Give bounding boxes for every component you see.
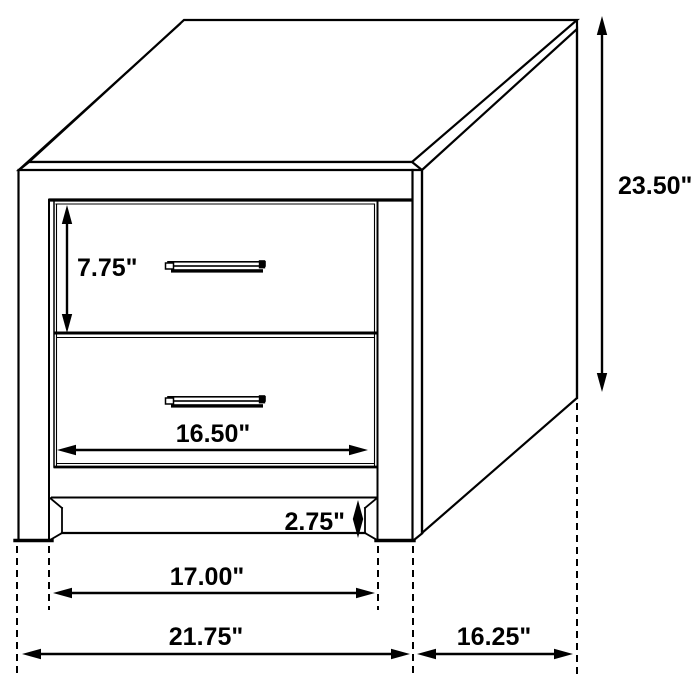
dim-overall-height-label: 23.50": [618, 172, 692, 200]
drawer-2-handle: [166, 395, 266, 407]
technical-drawing-canvas: 7.75" 23.50" 16.50" 2.75" 17: [0, 0, 700, 700]
top-front-edge: [19, 162, 422, 170]
drawer-1-handle: [166, 260, 266, 272]
dim-drawer-width-label: 16.50": [176, 420, 250, 448]
dim-drawer-height-label: 7.75": [77, 254, 138, 282]
nightstand-dimension-drawing: 7.75" 23.50" 16.50" 2.75" 17: [0, 0, 700, 700]
handle-right-cap: [259, 260, 265, 268]
dim-overall-width-label: 21.75": [169, 623, 243, 651]
handle-left-cap: [166, 263, 174, 269]
dim-base-rail-height-label: 2.75": [284, 508, 345, 536]
dim-leg-to-leg-width-label: 17.00": [170, 563, 244, 591]
dim-depth-label: 16.25": [457, 623, 531, 651]
